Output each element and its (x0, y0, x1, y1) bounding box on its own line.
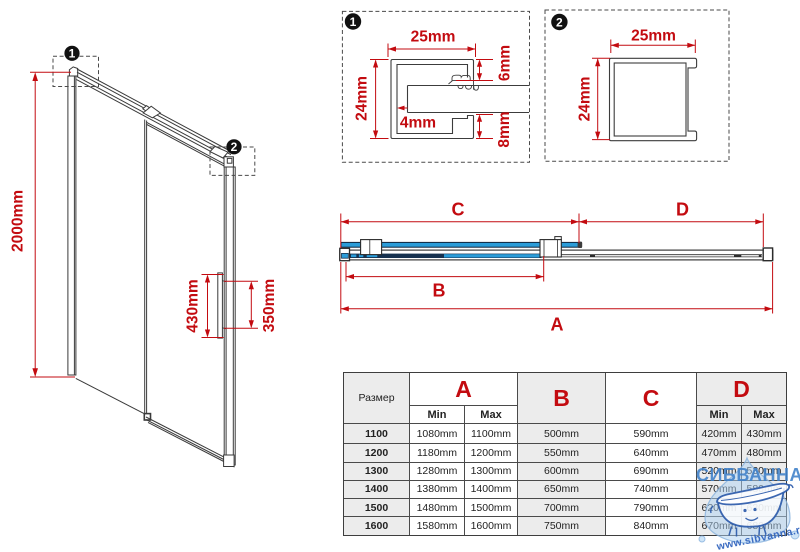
svg-text:24mm: 24mm (577, 77, 594, 122)
svg-text:СИБВАННА: СИБВАННА (696, 465, 800, 485)
svg-text:8mm: 8mm (496, 111, 513, 147)
svg-text:430mm: 430mm (185, 279, 202, 332)
svg-text:25mm: 25mm (411, 29, 456, 46)
svg-text:6mm: 6mm (497, 45, 514, 81)
svg-text:1: 1 (69, 47, 76, 61)
svg-text:B: B (433, 281, 446, 301)
svg-text:C: C (452, 200, 465, 220)
svg-text:2: 2 (231, 140, 238, 154)
svg-text:2000mm: 2000mm (10, 190, 27, 252)
svg-text:2: 2 (556, 16, 563, 30)
svg-text:350mm: 350mm (261, 279, 278, 332)
svg-text:A: A (551, 315, 564, 335)
svg-text:24mm: 24mm (354, 76, 371, 121)
svg-text:25mm: 25mm (631, 28, 676, 45)
svg-text:4mm: 4mm (400, 115, 436, 132)
svg-text:1: 1 (350, 15, 357, 29)
svg-text:D: D (676, 200, 689, 220)
